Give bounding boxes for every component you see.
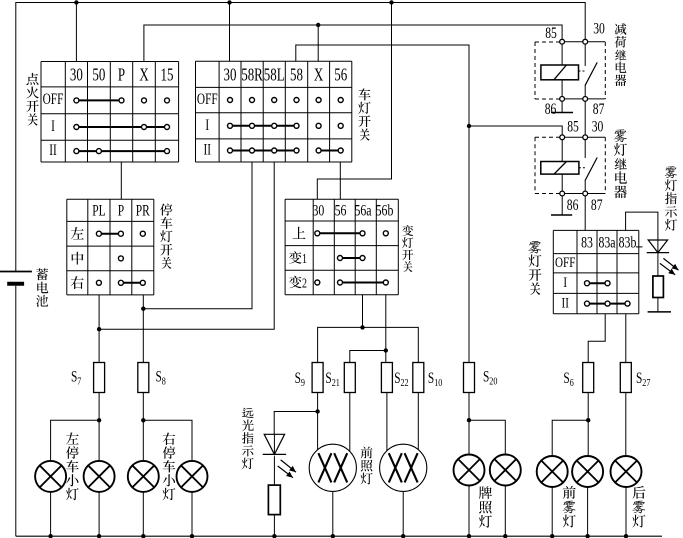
- svg-text:85: 85: [545, 24, 557, 41]
- svg-text:83: 83: [581, 234, 593, 252]
- svg-text:PL: PL: [92, 202, 105, 219]
- svg-text:30: 30: [224, 66, 237, 85]
- svg-text:1: 1: [302, 250, 307, 266]
- svg-text:58L: 58L: [264, 66, 285, 85]
- svg-text:I: I: [563, 273, 567, 290]
- svg-text:I: I: [205, 116, 209, 133]
- svg-text:OFF: OFF: [555, 253, 575, 270]
- svg-text:X: X: [314, 66, 323, 85]
- svg-text:56: 56: [334, 66, 347, 85]
- svg-text:PR: PR: [136, 202, 151, 219]
- svg-text:30: 30: [593, 20, 605, 37]
- svg-text:58R: 58R: [241, 66, 263, 85]
- svg-text:OFF: OFF: [43, 91, 64, 108]
- svg-text:83a: 83a: [598, 234, 616, 252]
- svg-text:2: 2: [302, 275, 307, 291]
- svg-text:30: 30: [312, 202, 324, 220]
- svg-text:P: P: [118, 202, 125, 219]
- svg-text:II: II: [204, 141, 212, 158]
- svg-text:50: 50: [92, 66, 105, 85]
- svg-text:15: 15: [161, 66, 174, 85]
- svg-text:58: 58: [290, 66, 303, 85]
- svg-text:87: 87: [593, 100, 605, 117]
- svg-text:86: 86: [545, 100, 557, 117]
- svg-text:56b: 56b: [376, 202, 394, 220]
- svg-text:30: 30: [70, 66, 83, 85]
- svg-text:P: P: [118, 66, 125, 85]
- svg-text:56: 56: [335, 202, 347, 220]
- svg-text:II: II: [49, 141, 57, 158]
- svg-text:30: 30: [592, 118, 604, 135]
- svg-text:OFF: OFF: [197, 90, 218, 107]
- svg-text:II: II: [561, 294, 568, 311]
- svg-text:56a: 56a: [354, 202, 372, 220]
- svg-text:85: 85: [567, 118, 579, 135]
- svg-text:I: I: [51, 117, 55, 134]
- svg-text:87: 87: [591, 196, 603, 213]
- svg-text:83b: 83b: [619, 234, 637, 252]
- svg-text:X: X: [139, 66, 148, 85]
- svg-text:86: 86: [567, 196, 579, 213]
